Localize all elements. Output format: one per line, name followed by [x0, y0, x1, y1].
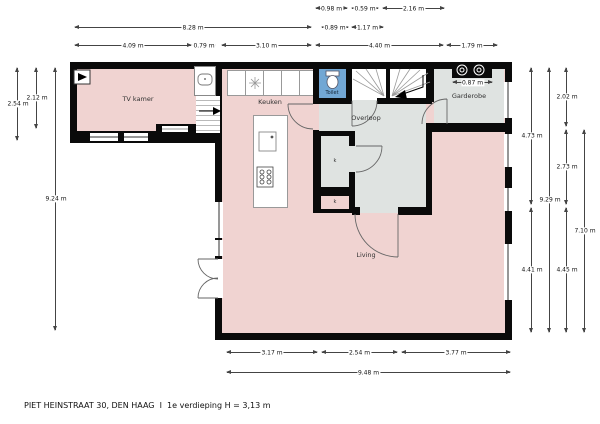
dim-label: 9.48 m [357, 369, 380, 376]
dim-label: 2.02 m [555, 93, 578, 100]
dim-horizontal: 1.79 m [447, 45, 497, 46]
floorplan-canvas: TV kamer Keuken Toilet Overloop Garderob… [0, 0, 600, 424]
dim-horizontal: 3.77 m [402, 352, 510, 353]
dim-horizontal: 2.16 m [383, 8, 444, 9]
dim-vertical: 2.73 m [566, 130, 567, 204]
dim-horizontal: 0.87 m [453, 82, 492, 83]
dim-horizontal: 4.40 m [316, 45, 443, 46]
dim-horizontal: 3.10 m [222, 45, 311, 46]
dim-horizontal: 8.28 m [75, 27, 311, 28]
dim-label: 0.87 m [461, 79, 484, 86]
dim-vertical: 9.24 m [55, 68, 56, 330]
dim-vertical: 2.02 m [566, 68, 567, 126]
dim-label: 2.16 m [402, 5, 425, 12]
plan-title: PIET HEINSTRAAT 30, DEN HAAG I 1e verdie… [24, 401, 271, 410]
dim-horizontal: 0.89 m [322, 27, 348, 28]
dim-label: 4.45 m [555, 266, 578, 273]
dim-label: 3.17 m [260, 349, 283, 356]
dim-label: 8.28 m [181, 24, 204, 31]
dim-label: 4.09 m [121, 42, 144, 49]
dim-horizontal: 0.98 m [316, 8, 347, 9]
dim-label: 3.10 m [255, 42, 278, 49]
dim-label: 1.17 m [356, 24, 379, 31]
dimension-layer: 0.98 m0.59 m2.16 m8.28 m0.89 m1.17 m4.09… [0, 0, 600, 424]
dim-label: 2.73 m [555, 163, 578, 170]
dim-vertical: 7.10 m [584, 130, 585, 332]
dim-label: 4.40 m [368, 42, 391, 49]
dim-vertical: 4.45 m [566, 208, 567, 332]
dim-label: 3.77 m [444, 349, 467, 356]
dim-label: 9.29 m [538, 196, 561, 203]
dim-label: 2.54 m [6, 100, 29, 107]
dim-label: 9.24 m [44, 195, 67, 202]
dim-horizontal: 9.48 m [227, 372, 510, 373]
dim-label: 0.79 m [192, 42, 215, 49]
dim-vertical: 9.29 m [549, 68, 550, 332]
dim-label: 4.41 m [520, 266, 543, 273]
dim-label: 0.59 m [353, 5, 376, 12]
dim-horizontal: 3.17 m [227, 352, 317, 353]
dim-vertical: 2.54 m [17, 68, 18, 140]
dim-vertical: 2.12 m [36, 68, 37, 128]
dim-vertical: 4.41 m [531, 208, 532, 332]
dim-vertical: 4.73 m [531, 68, 532, 204]
dim-label: 2.54 m [348, 349, 371, 356]
dim-label: 0.89 m [323, 24, 346, 31]
dim-horizontal: 0.59 m [352, 8, 378, 9]
dim-horizontal: 2.54 m [322, 352, 397, 353]
dim-horizontal: 1.17 m [352, 27, 383, 28]
dim-label: 4.73 m [520, 132, 543, 139]
dim-label: 1.79 m [460, 42, 483, 49]
dim-horizontal: 4.09 m [75, 45, 191, 46]
dim-label: 7.10 m [573, 227, 596, 234]
dim-label: 0.98 m [320, 5, 343, 12]
dim-label: 2.12 m [25, 94, 48, 101]
dim-horizontal: 0.79 m [193, 45, 215, 46]
